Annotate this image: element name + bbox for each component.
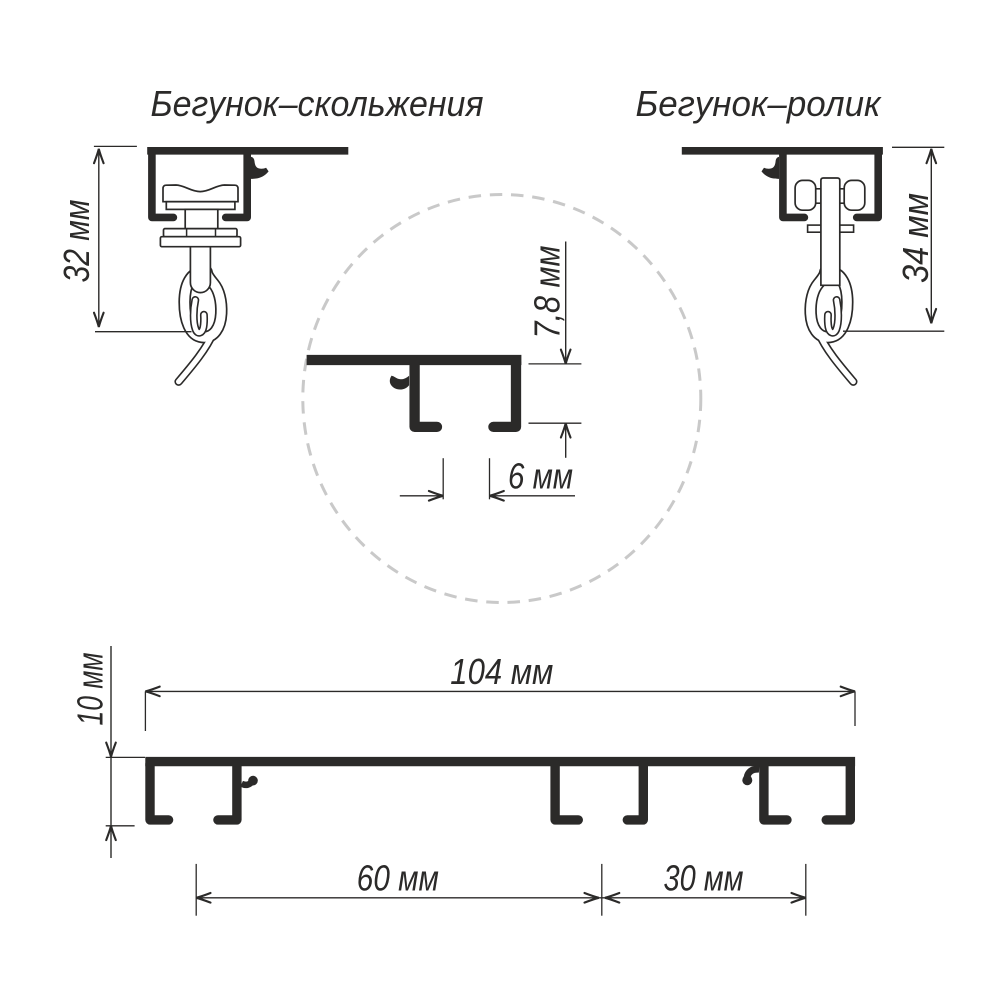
svg-text:7,8 мм: 7,8 мм (527, 246, 568, 339)
svg-text:104 мм: 104 мм (450, 651, 553, 692)
svg-text:32 мм: 32 мм (56, 200, 97, 283)
svg-text:34 мм: 34 мм (895, 193, 936, 283)
svg-text:Бегунок–ролик: Бегунок–ролик (636, 83, 883, 124)
svg-text:10 мм: 10 мм (70, 653, 111, 726)
svg-text:Бегунок–скольжения: Бегунок–скольжения (151, 83, 484, 124)
svg-text:60 мм: 60 мм (357, 858, 439, 899)
svg-text:30 мм: 30 мм (664, 858, 744, 899)
svg-text:6 мм: 6 мм (508, 456, 573, 497)
